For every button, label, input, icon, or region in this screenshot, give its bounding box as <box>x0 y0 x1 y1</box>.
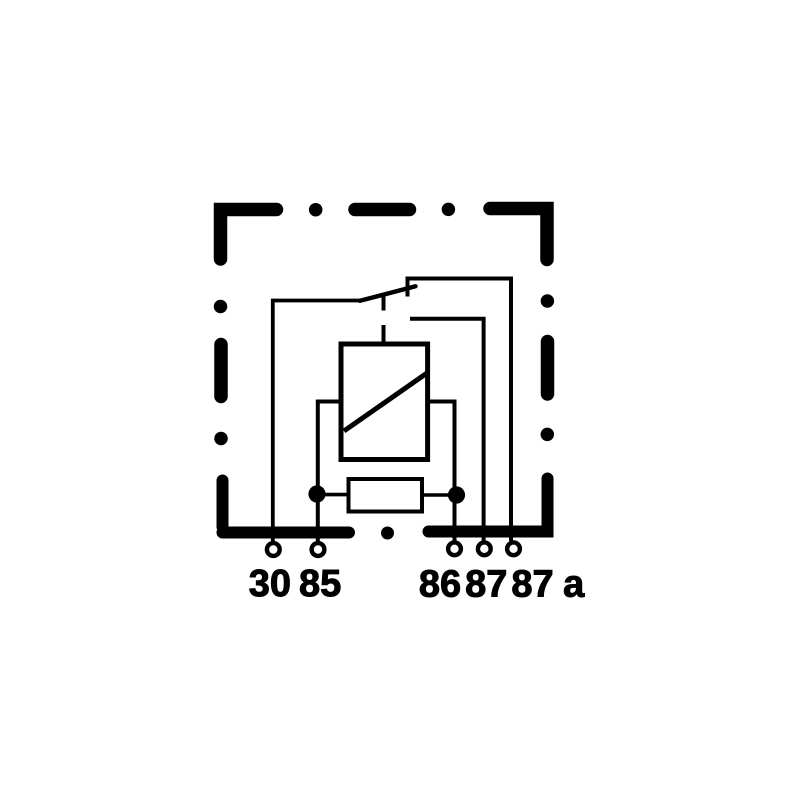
svg-text:86: 86 <box>419 563 461 605</box>
svg-text:85: 85 <box>299 563 341 605</box>
svg-text:87: 87 <box>511 563 553 605</box>
svg-text:87: 87 <box>465 563 507 605</box>
svg-text:30: 30 <box>249 563 291 605</box>
svg-text:a: a <box>563 563 585 605</box>
